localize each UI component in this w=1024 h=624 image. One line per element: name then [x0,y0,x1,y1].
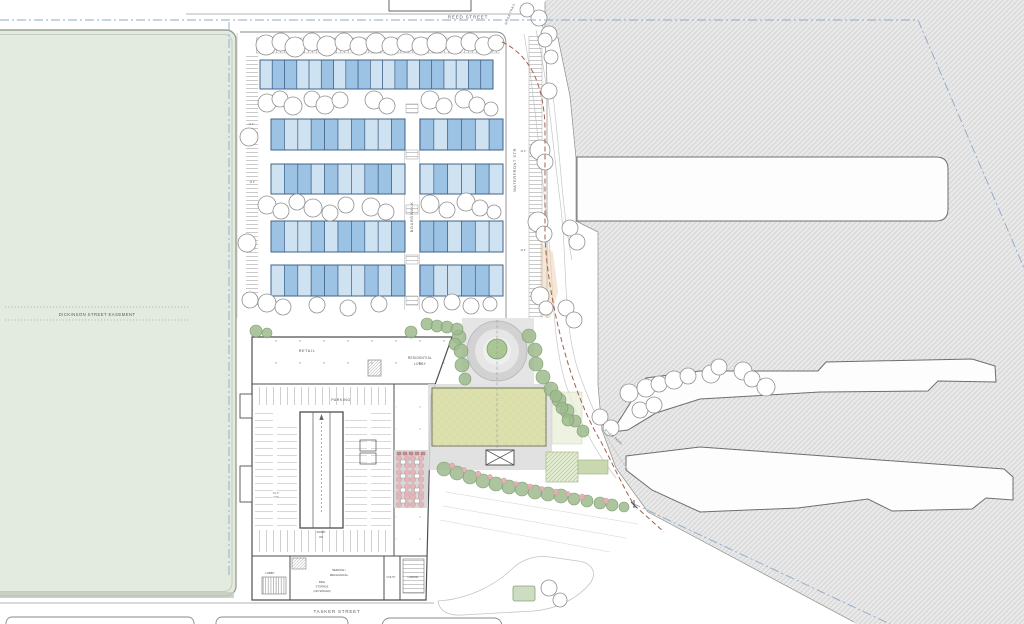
townhouse-unit [365,265,378,296]
townhouse-unit [284,119,297,150]
townhouse-unit [420,265,434,296]
townhouse-unit [311,119,324,150]
service-mechanical-label-1: SERVICE / [332,568,346,572]
townhouse-unit [392,221,405,252]
townhouse-unit [272,60,284,89]
townhouse-unit [365,221,378,252]
townhouse-unit [481,60,493,89]
townhouse-unit [395,60,407,89]
townhouse-unit [489,164,503,194]
townhouse-unit [284,164,297,194]
townhouse-unit [378,164,391,194]
parking-count-left-south: 16 P [249,180,255,184]
stair-core [292,558,306,569]
townhouse-unit [297,60,309,89]
service-mechanical-label-2: MECHANICAL [330,573,349,577]
site-plan-canvas: DICKINSON STREET EASEMENT [0,0,1024,624]
dim-typ-label-2: TYP. [273,495,279,499]
townhouse-unit [351,119,364,150]
townhouse-unit [448,164,462,194]
townhouse-unit [298,221,311,252]
parking-count-waterfront-south: 10 P [520,248,526,252]
townhouse-unit [419,60,431,89]
townhouse-unit [311,265,324,296]
townhouse-unit [365,119,378,150]
townhouse-unit [271,119,284,150]
townhouse-unit [298,164,311,194]
boardwalk-label: BOARDWALK [409,202,414,233]
townhouse-unit [392,164,405,194]
bike-storage-label-3: (120 SPACES) [313,589,330,593]
townhouse-unit [284,221,297,252]
townhouse-unit [462,221,476,252]
elevator-core [368,360,381,376]
townhouse-unit [378,265,391,296]
planted-island [513,586,535,601]
townhouse-unit [285,60,297,89]
townhouse-unit [392,119,405,150]
townhouse-unit [462,265,476,296]
dim-typ-label-1: 24'-0" [273,491,280,495]
hedge [578,460,608,474]
townhouse-unit [489,221,503,252]
townhouse-unit [351,164,364,194]
townhouse-unit [338,221,351,252]
townhouse-unit [334,60,346,89]
townhouse-unit [311,221,324,252]
townhouse-unit [448,265,462,296]
townhouse-unit [260,60,272,89]
townhouse-unit [489,119,503,150]
townhouse-unit [378,119,391,150]
townhouse-unit [489,265,503,296]
townhouse-unit [434,119,448,150]
townhouse-unit [271,265,284,296]
parking-count-waterfront-north: 10 P [520,149,526,153]
townhouse-unit [325,164,338,194]
ramp-label-2: UP [319,535,323,539]
townhouse-unit [448,119,462,150]
dickinson-easement-field: DICKINSON STREET EASEMENT [0,30,236,598]
townhouse-unit [351,265,364,296]
townhouse-unit [311,164,324,194]
bike-rack [262,577,286,594]
townhouse-unit [407,60,419,89]
townhouse-unit [448,221,462,252]
tasker-street-label: TASKER STREET [313,609,360,614]
townhouse-unit [284,265,297,296]
townhouse-unit [370,60,382,89]
townhouse-unit [456,60,468,89]
townhouse-unit [475,164,489,194]
parking-label: PARKING [331,398,350,402]
townhouse-unit [338,164,351,194]
townhouse-unit [351,221,364,252]
bike-storage-label-2: STORAGE [316,585,329,589]
townhouse-unit [338,265,351,296]
utility-label: UTILITY [387,576,396,579]
townhouse-unit [475,119,489,150]
townhouse-unit [338,119,351,150]
townhouse-unit [298,265,311,296]
reed-street-label: REED STREET [448,15,488,20]
townhouse-unit [420,164,434,194]
townhouse-unit [325,265,338,296]
pier-north [577,157,948,221]
townhouse-unit [298,119,311,150]
retail-label: RETAIL [299,349,316,353]
townhouse-unit [475,265,489,296]
townhouse-unit [434,164,448,194]
townhouse-unit [271,221,284,252]
townhouse-unit [462,119,476,150]
loading-label: LOADING [408,576,419,579]
townhouse-unit [420,119,434,150]
townhouse-unit [392,265,405,296]
pergola [486,450,514,465]
townhouse-unit [321,60,333,89]
townhouse-unit [420,221,434,252]
residential-lobby-label-1: RESIDENTIAL [408,356,432,360]
townhouse-unit [325,119,338,150]
townhouse-unit [432,60,444,89]
townhouse-unit [358,60,370,89]
townhouse-unit [309,60,321,89]
townhouse-unit [444,60,456,89]
townhouse-unit [462,164,476,194]
lobby-label: LOBBY [265,571,274,575]
townhouse-unit [271,164,284,194]
residential-lobby-label-2: LOBBY [414,362,427,366]
townhouse-unit [468,60,480,89]
townhouse-unit [346,60,358,89]
bike-storage-label-1: BIKE [319,580,325,584]
townhouse-unit [475,221,489,252]
parking-count-left-north: 14 P [248,122,254,126]
townhouse-unit [325,221,338,252]
townhouse-unit [434,221,448,252]
townhouse-unit [434,265,448,296]
townhouse-unit [383,60,395,89]
ramp-label-1: RAMP [317,530,326,534]
townhouse-unit [378,221,391,252]
dickinson-easement-label: DICKINSON STREET EASEMENT [59,312,136,317]
townhouse-unit [365,164,378,194]
waterfront-street-label: WATERFRONT STR [512,148,517,192]
